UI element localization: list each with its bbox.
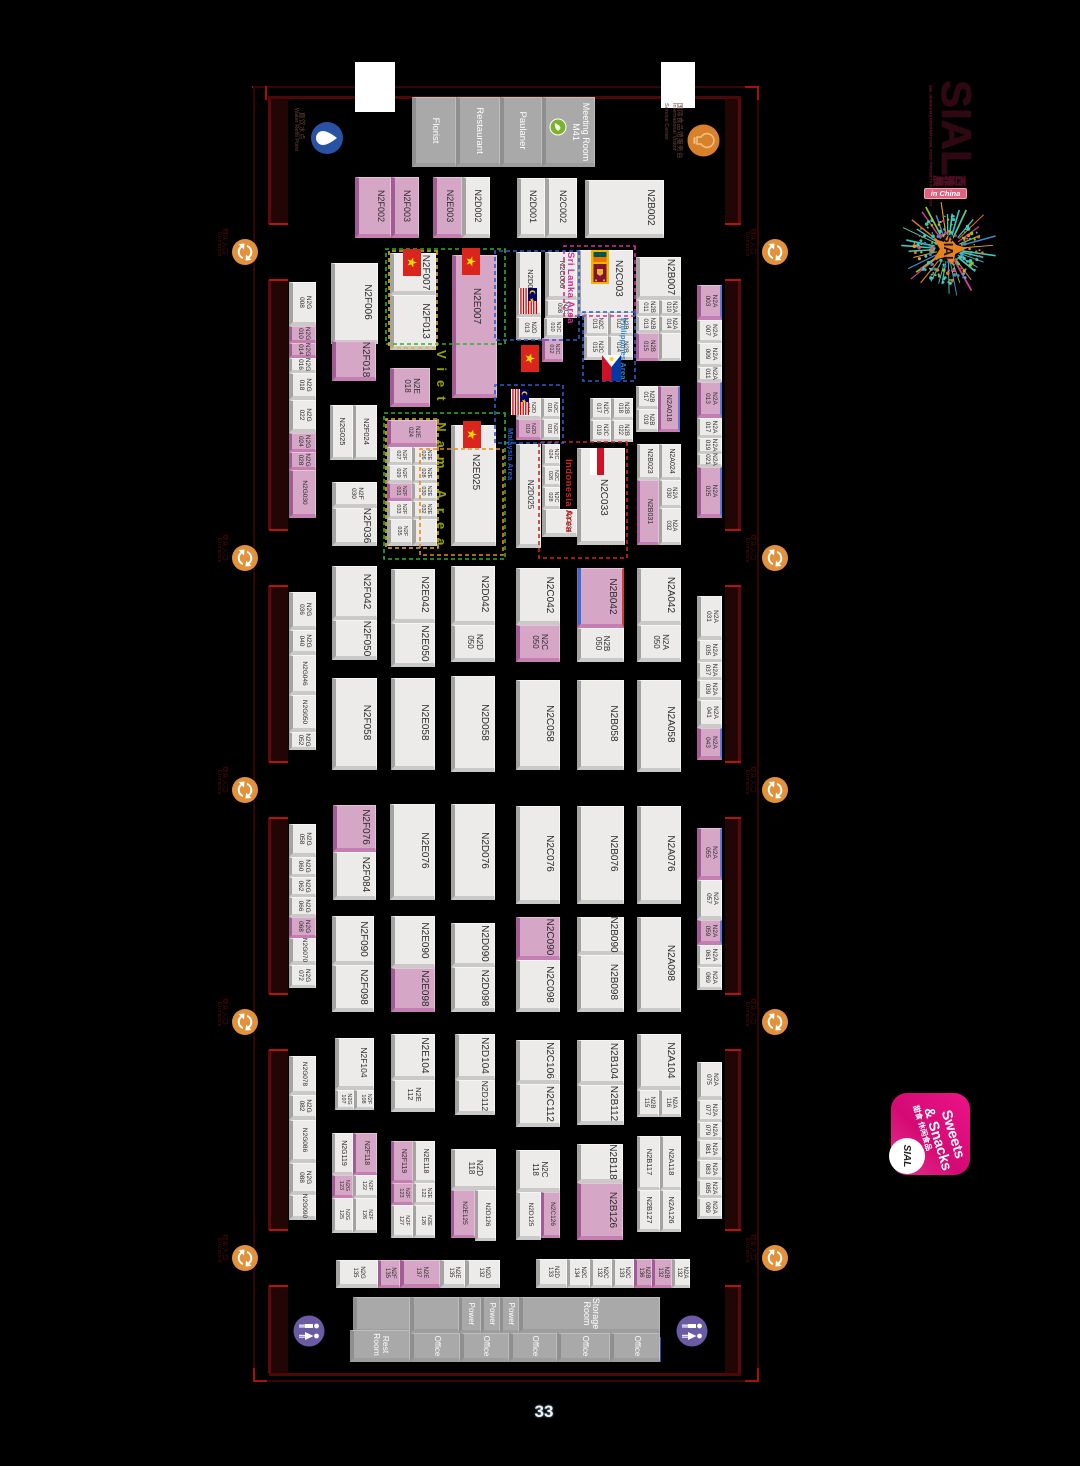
- svg-text:★: ★: [465, 429, 480, 441]
- svg-text:★: ★: [405, 257, 420, 269]
- svg-text:★: ★: [528, 298, 535, 303]
- svg-text:SIAL: SIAL: [941, 234, 956, 264]
- svg-text:★: ★: [464, 256, 479, 268]
- svg-text:★: ★: [523, 353, 538, 365]
- svg-text:★: ★: [520, 399, 527, 404]
